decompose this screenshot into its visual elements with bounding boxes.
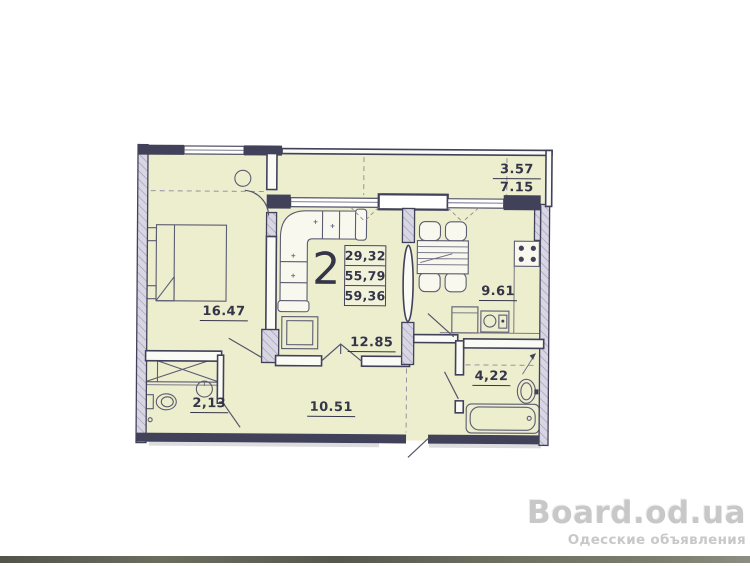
living-area-label: 12.85 [346, 336, 398, 352]
bottom-photo-strip [0, 556, 750, 563]
kitchen-area-label: 9.61 [474, 285, 522, 301]
bathroom-area-label: 4,22 [467, 370, 515, 386]
area-table-row-living: 29,32 [345, 246, 385, 266]
watermark: Board.od.ua Одесские объявления [527, 498, 746, 548]
wc-area-label: 2,13 [187, 397, 231, 413]
bedroom-area-label: 16.47 [198, 305, 250, 321]
stove [514, 241, 539, 266]
area-table-row-total: 55,79 [345, 266, 385, 286]
area-table: 29,32 55,79 59,36 [344, 245, 386, 306]
unit-number: 2 [312, 248, 342, 292]
area-table-row-overall: 59,36 [345, 286, 385, 305]
balcony-area-reduced: 3.57 [493, 162, 541, 179]
watermark-title: Board.od.ua [527, 498, 746, 529]
watermark-subtitle: Одесские объявления [527, 532, 746, 548]
balcony-area-label: 3.57 7.15 [493, 162, 541, 195]
screenshot-root: 16.47 12.85 10.51 2,13 9.61 4,22 3.57 7.… [0, 0, 750, 563]
hall-area-label: 10.51 [305, 401, 357, 417]
floor-plan: 16.47 12.85 10.51 2,13 9.61 4,22 3.57 7.… [0, 0, 750, 566]
balcony-area-full: 7.15 [493, 179, 541, 195]
